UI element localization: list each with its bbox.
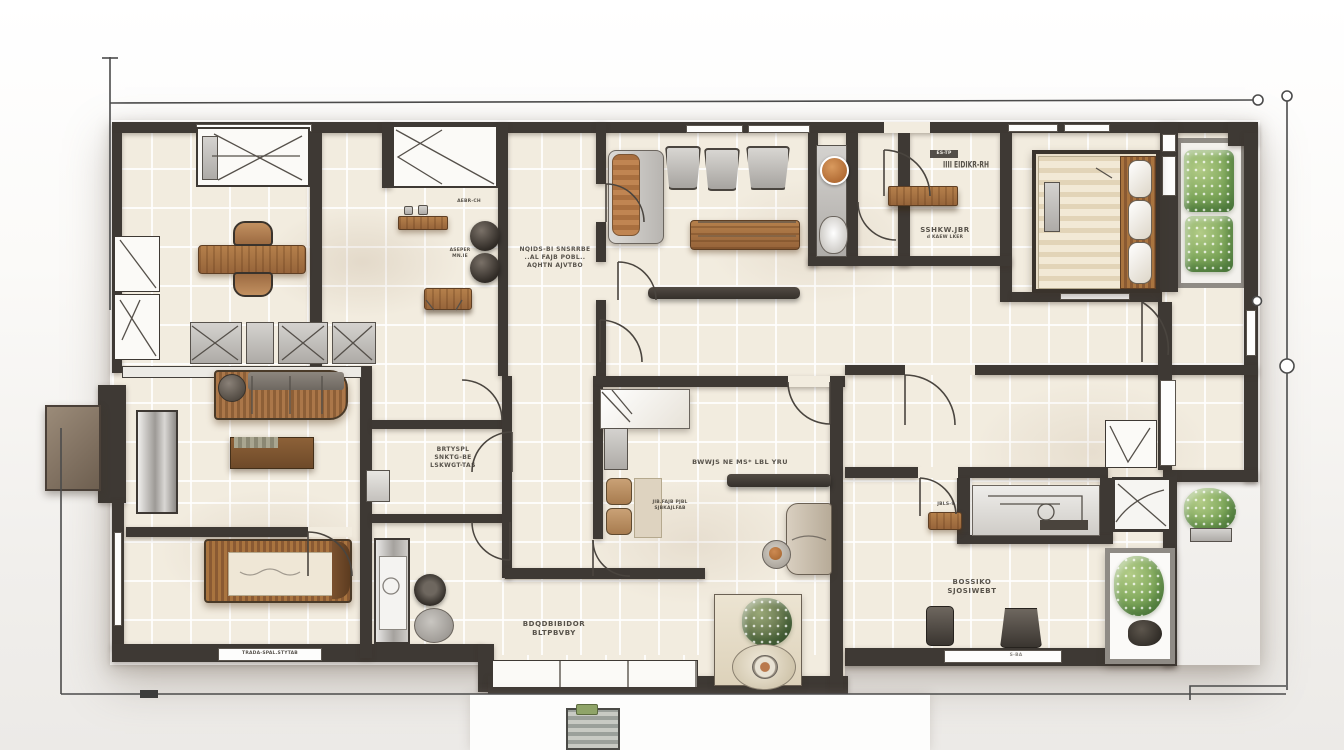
great-room-label: BDQDBIBIDOR BLTPBVBY	[518, 620, 590, 638]
office-label-line: SJOSIWEBT	[926, 587, 1018, 596]
study-label-sub: d KAEW LKER	[900, 235, 990, 241]
bath-label-line: BRTYSPL	[422, 446, 484, 454]
corridor-label-line: ..AL FAJB POBL..	[512, 254, 598, 262]
great-room-label-line: BLTPBVBY	[518, 629, 590, 638]
closet-tag: AEBR-CH	[452, 199, 486, 205]
window-strip-label: TRADA-SPAL.STYTAB	[220, 651, 320, 657]
corridor-label: NQIDS-BI SNSRRBE ..AL FAJB POBL.. AQHTN …	[512, 246, 598, 269]
shelf-tag: ASEPER MN.IE	[436, 248, 484, 260]
corridor-label-line: AQHTN AJVTBO	[512, 262, 598, 270]
door-arcs	[308, 150, 1168, 576]
corridor-label-line: NQIDS-BI SNSRRBE	[512, 246, 598, 254]
great-room-label-line: BDQDBIBIDOR	[518, 620, 590, 629]
stool-tag: JBLS-9	[928, 502, 964, 508]
center-room-small-line: SJBKAJLFAB	[644, 506, 696, 512]
center-room-label: BWWJS NE MS* LBL YRU	[692, 458, 788, 466]
study-label-title: SSHKW.JBR	[900, 226, 990, 235]
study-barcode-label: IIII EIDIKR-RH	[938, 160, 994, 171]
counter-tag: S-BA	[986, 653, 1046, 659]
furniture-sketch-lines	[120, 130, 1166, 594]
study-tag: ES-TP	[930, 150, 958, 158]
floor-plan-canvas: NQIDS-BI SNSRRBE ..AL FAJB POBL.. AQHTN …	[0, 0, 1344, 750]
bath-label-line: LSKWGT-TAS	[422, 462, 484, 470]
shelf-tag-line: MN.IE	[436, 254, 484, 260]
bath-label-line: SNKTG-BE	[422, 454, 484, 462]
office-label-line: BOSSIKO	[926, 578, 1018, 587]
sketch-overlay	[0, 0, 1344, 750]
office-label: BOSSIKO SJOSIWEBT	[926, 578, 1018, 596]
bath-label: BRTYSPL SNKTG-BE LSKWGT-TAS	[422, 446, 484, 469]
center-room-small-label: JIB.FAJB PJBL SJBKAJLFAB	[644, 500, 696, 512]
survey-lines	[61, 57, 1294, 700]
study-label: SSHKW.JBR d KAEW LKER	[900, 226, 990, 241]
